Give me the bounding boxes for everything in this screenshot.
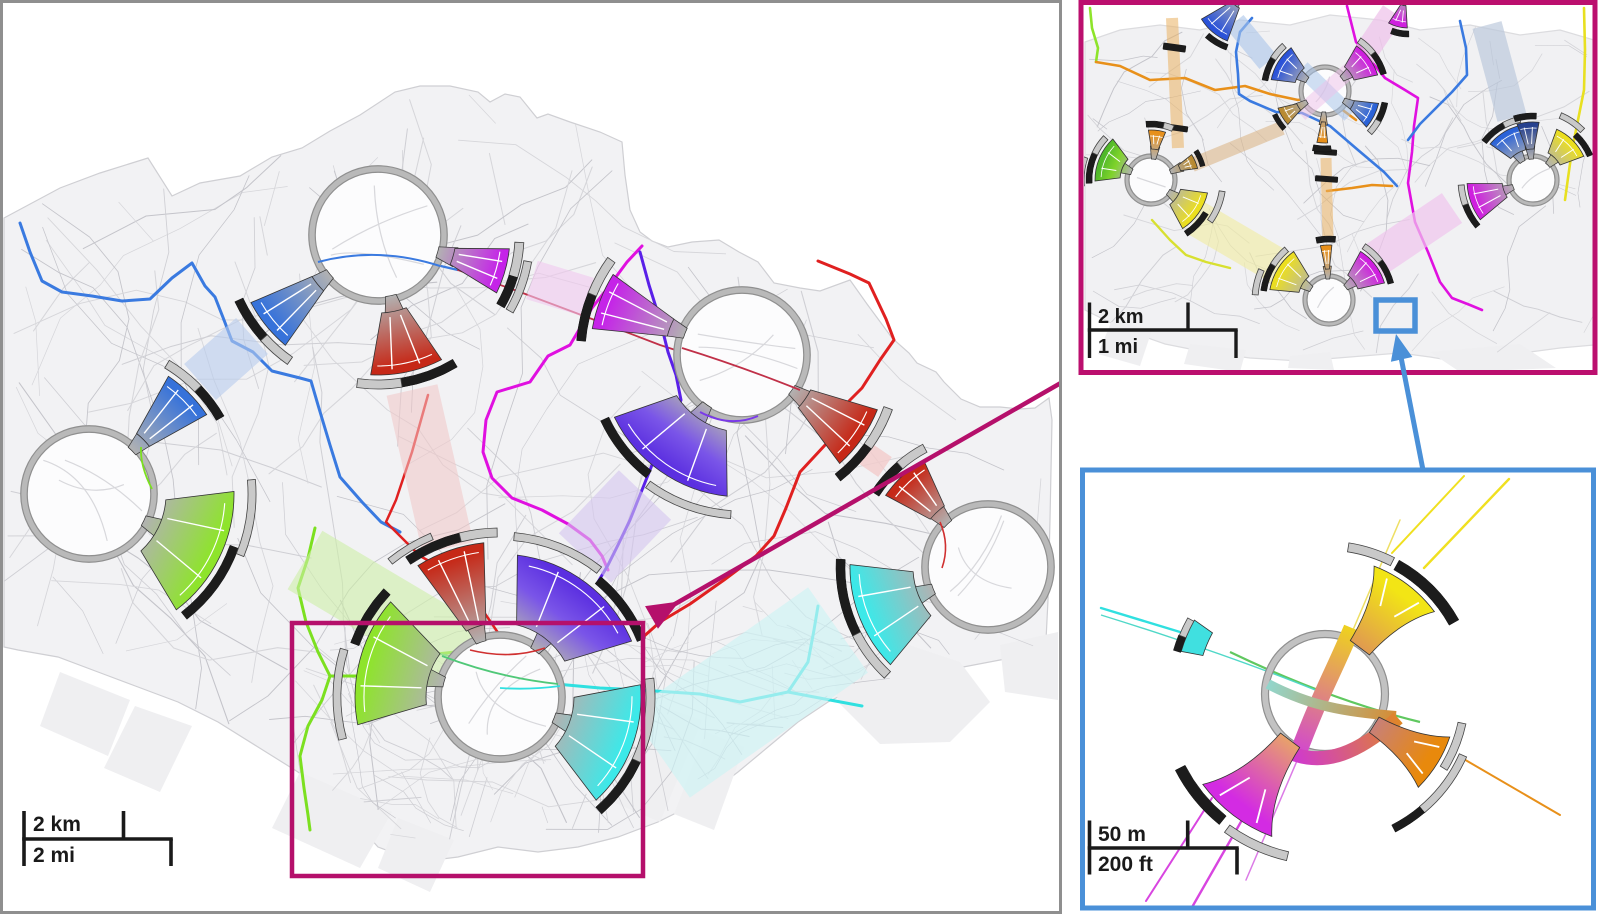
svg-text:1 mi: 1 mi [1098,336,1138,358]
svg-text:2 mi: 2 mi [33,844,75,867]
svg-text:200 ft: 200 ft [1098,853,1153,876]
svg-text:2 km: 2 km [33,813,81,836]
svg-text:50 m: 50 m [1098,823,1146,846]
svg-text:2 km: 2 km [1098,306,1144,328]
